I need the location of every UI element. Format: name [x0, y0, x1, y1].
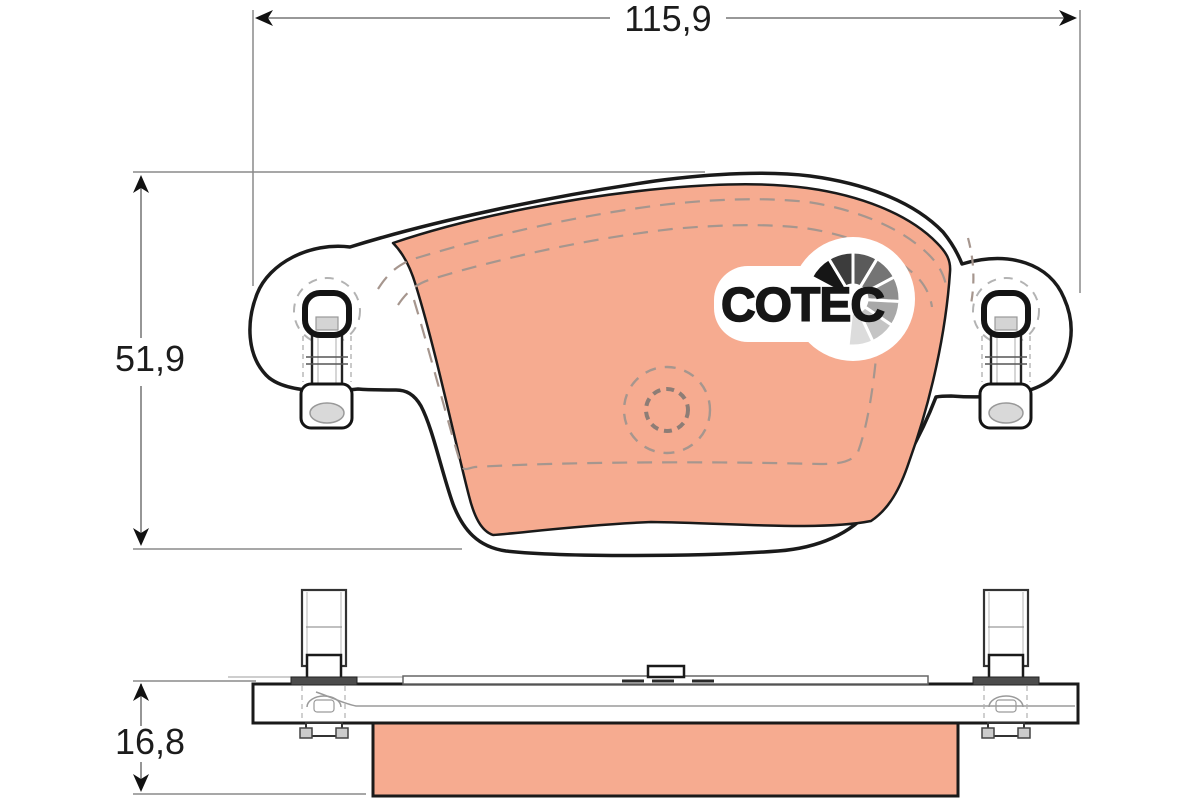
side-view	[228, 590, 1078, 796]
pin-collar	[316, 317, 338, 330]
clip-flange	[973, 677, 1039, 685]
pin-shaft	[991, 332, 1021, 386]
friction-material-front	[393, 184, 950, 535]
backplate-side	[253, 684, 1078, 723]
cotec-logo-text: COTEC	[721, 279, 884, 332]
locating-tab	[648, 666, 684, 677]
front-view: COTEC	[250, 173, 1071, 555]
friction-material-side	[373, 723, 958, 796]
thickness-dimension-label: 16,8	[115, 721, 185, 762]
clip-collar	[307, 655, 341, 678]
pin-collar	[995, 317, 1017, 330]
clip-flange	[291, 677, 357, 685]
pin-shaft	[312, 332, 342, 386]
clip-collar	[989, 655, 1023, 678]
height-dimension-label: 51,9	[115, 338, 185, 379]
brake-pad-drawing: 115,9 51,9 16,8	[0, 0, 1200, 800]
width-dimension-label: 115,9	[624, 0, 711, 39]
